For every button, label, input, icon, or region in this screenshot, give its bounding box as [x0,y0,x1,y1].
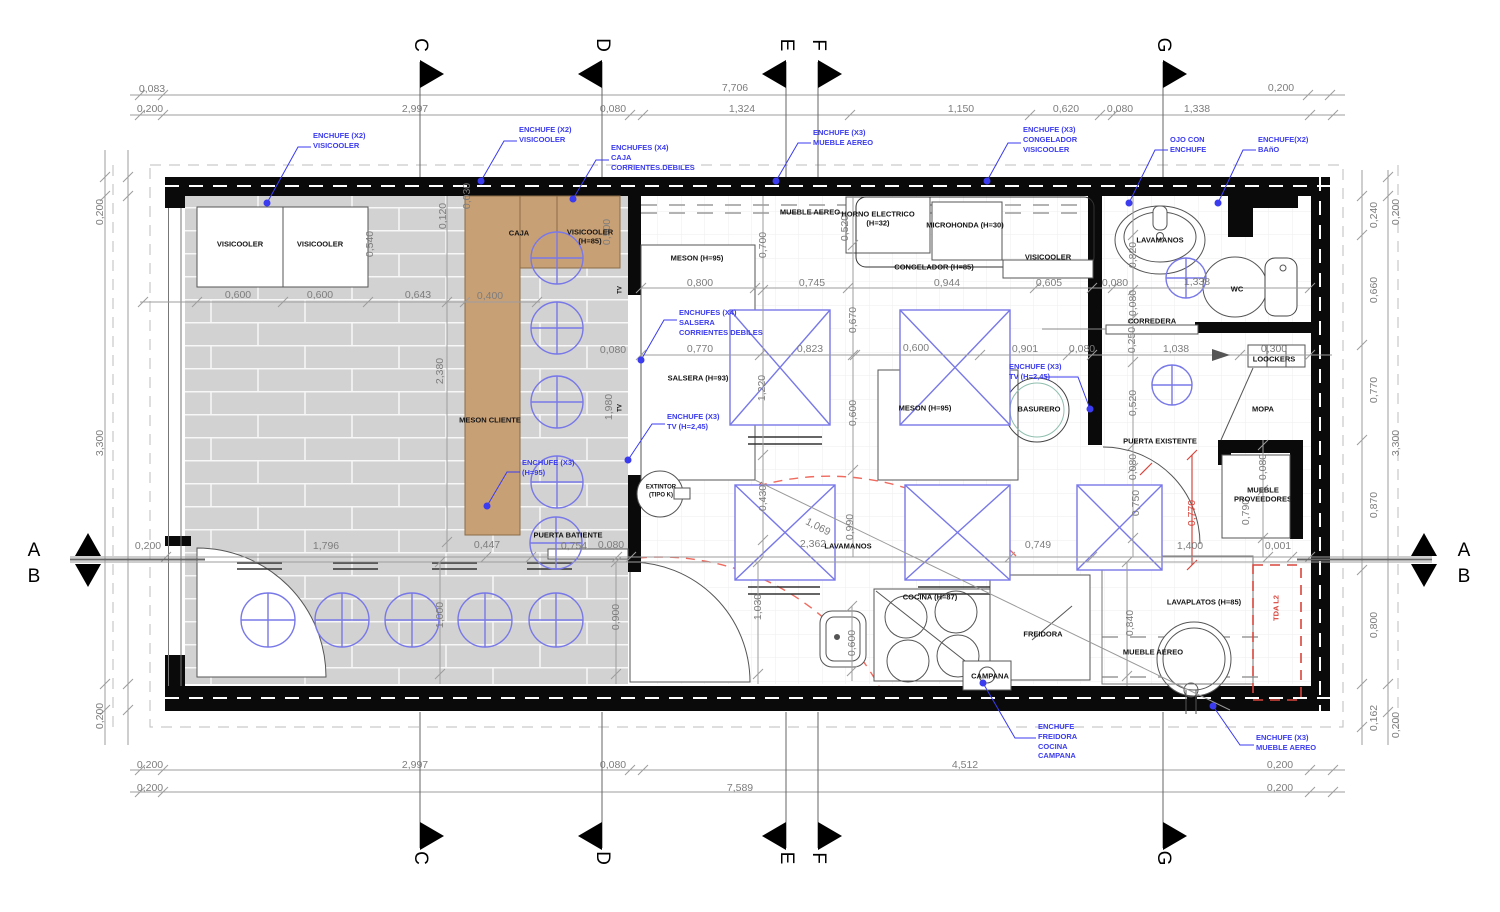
dim: 0,200 [1267,782,1293,794]
dim: 2,380 [434,358,446,384]
dim: 0,944 [934,277,960,289]
dim: 0,770 [1368,377,1380,403]
dim: 0,870 [1368,492,1380,518]
annotation-enchufe-tv: ENCHUFE (X3) TV (H=2,45) [667,412,720,432]
label-loockers: LOOCKERS [1253,354,1296,363]
section-marker-f-bottom: F [807,852,829,864]
label-lavamanos: LAVAMANOS [824,541,871,550]
storefront-glazing [169,208,182,686]
label-caja: CAJA [509,228,529,237]
dim: 0,620 [1053,103,1079,115]
dim: 0,901 [1012,343,1038,355]
dim: 1,338 [1184,276,1210,288]
dim: 0,080 [1257,454,1269,480]
dim: 0,080 [598,539,624,551]
dim: 0,990 [844,514,856,540]
section-marker-c-bottom: C [409,851,431,865]
dim: 0,605 [1036,277,1062,289]
dim: 0,840 [1124,610,1136,636]
dim: 3,300 [1390,430,1402,456]
label-meson-h95: MESON (H=95) [899,403,952,412]
dim: 1,324 [729,103,755,115]
annotation-enchufe-mueble-aereo: ENCHUFE (X3) MUEBLE AEREO [1256,733,1316,753]
dim: 0,120 [437,203,449,229]
label-tda-l2: TDA L2 [1271,595,1280,621]
dim: 0,660 [1368,277,1380,303]
dim: 2,997 [402,103,428,115]
dim: 0,080 [1069,343,1095,355]
section-marker-e-top: E [775,39,797,52]
label-congelador: CONGELADOR (H=85) [894,262,973,271]
dim: 0,200 [1268,82,1294,94]
annotation-enchufes-caja: ENCHUFES (X4) CAJA CORRIENTES.DEBILES [611,143,695,172]
annotation-enchufe-h95: ENCHUFE (X3) (H=95) [522,458,575,478]
dim: 0,162 [1368,705,1380,731]
label-mueble-aereo: MUEBLE AEREO [780,207,840,216]
dim: 0,001 [1265,540,1291,552]
label-campana: CAMPANA [971,671,1009,680]
label-visicooler-h85: VISICOOLER (H=85) [567,228,613,247]
dim: 0,745 [799,277,825,289]
section-marker-d-top: D [591,38,613,52]
label-corredera: CORREDERA [1128,316,1176,325]
label-tv: TV [617,404,625,412]
dim: 0,800 [687,277,713,289]
dim: 0,430 [757,485,769,511]
dim: 0,200 [137,759,163,771]
dim: 4,512 [952,759,978,771]
annotation-enchufe-mueble-aereo: ENCHUFE (X3) MUEBLE AEREO [813,128,873,148]
label-freidora: FREIDORA [1023,629,1062,638]
dim: 0,643 [405,289,431,301]
label-puerta-existente: PUERTA EXISTENTE [1123,436,1197,445]
dim: 0,447 [474,539,500,551]
label-meson-cliente: MESON CLIENTE [459,415,521,424]
label-basurero: BASURERO [1018,404,1061,413]
dim: 0,670 [847,307,859,333]
dim: 0,300 [1261,343,1287,355]
dim: 0,200 [135,540,161,552]
section-marker-c-top: C [409,38,431,52]
dim: 0,600 [307,289,333,301]
dim: 0,200 [94,199,106,225]
dim: 1,038 [1163,343,1189,355]
label-microhonda: MICROHONDA (H=30) [926,220,1003,229]
dim: 7,589 [727,782,753,794]
floor-plan-canvas: C D E F G C D E F G A B A B 0,083 7,706 … [0,0,1500,912]
dim: 0,400 [477,290,503,302]
dim: 0,600 [903,342,929,354]
label-visicooler: VISICOOLER [1025,252,1071,261]
dim: 0,083 [139,83,165,95]
dim: 0,080 [600,103,626,115]
dim: 0,754 [561,540,587,552]
dim: 1,400 [1177,540,1203,552]
annotation-enchufe-bano: ENCHUFE(X2) BAñO [1258,135,1308,155]
dim: 0,250 [1126,327,1138,353]
dim-red: 0,770 [1186,500,1198,526]
dim: 0,800 [1368,612,1380,638]
dim: 1,796 [313,540,339,552]
dim: 0,823 [797,343,823,355]
label-horno-electrico: HORNO ELECTRICO (H=32) [841,210,914,229]
annotation-ojo-con-enchufe: OJO CON ENCHUFE [1170,135,1206,155]
dim: 2,997 [402,759,428,771]
dim: 2,362 [800,538,826,550]
annotation-enchufe-visicooler: ENCHUFE (X2) VISICOOLER [519,125,572,145]
label-extintor: EXTINTOR (TIPO K) [646,485,676,500]
dim: 0,200 [94,703,106,729]
dim: 0,200 [1390,712,1402,738]
section-marker-g-bottom: G [1152,851,1174,866]
annotation-enchufe-visicooler: ENCHUFE (X2) VISICOOLER [313,131,366,151]
dim: 0,080 [1107,103,1133,115]
dim: 1,000 [434,602,446,628]
dim: 0,240 [1368,202,1380,228]
dim: 0,080 [1102,277,1128,289]
label-mopa: MOPA [1252,404,1274,413]
section-marker-b-right: B [1458,566,1471,588]
section-marker-a-left: A [28,540,41,562]
dim: 0,820 [1127,242,1139,268]
dim: 0,200 [1267,759,1293,771]
dim: 0,080 [1127,290,1139,316]
label-wc: WC [1231,284,1244,293]
dim: 0,080 [1127,454,1139,480]
dim: 0,700 [757,232,769,258]
dim: 0,200 [1390,199,1402,225]
dim: 0,080 [600,759,626,771]
dim: 0,200 [137,103,163,115]
dim: 0,200 [137,782,163,794]
section-marker-b-left: B [28,566,41,588]
annotation-enchufe-freidora-cocina-campana: ENCHUFE FREIDORA COCINA CAMPANA [1038,722,1077,761]
section-marker-a-right: A [1458,540,1471,562]
section-marker-g-top: G [1152,38,1174,53]
dim: 0,600 [225,289,251,301]
dim: 1,150 [948,103,974,115]
section-marker-e-bottom: E [775,852,797,865]
dim: 0,600 [846,630,858,656]
label-mueble-proveedores: MUEBLE PROVEEDORES [1234,486,1292,505]
annotation-enchufes-salsera: ENCHUFES (X4) SALSERA CORRIENTES DEBILES [679,308,763,337]
dim: 0,750 [1130,490,1142,516]
dim: 0,770 [687,343,713,355]
dim: 0,600 [847,400,859,426]
label-salsera: SALSERA (H=93) [668,373,729,382]
dim: 3,300 [94,430,106,456]
label-cocina: COCINA (H=87) [903,592,958,601]
label-lavamanos: LAVAMANOS [1136,235,1183,244]
dim: 0,520 [1127,390,1139,416]
label-visicooler: VISICOOLER [217,239,263,248]
dim: 7,706 [722,82,748,94]
dim: 0,080 [600,344,626,356]
dim: 0,540 [364,231,376,257]
annotation-enchufe-congelador: ENCHUFE (X3) CONGELADOR VISICOOLER [1023,125,1077,154]
dim: 1,980 [603,394,615,420]
label-mueble-aereo: MUEBLE AEREO [1123,647,1183,656]
section-marker-d-bottom: D [591,851,613,865]
dim: 1,220 [756,375,768,401]
dim: 0,900 [610,604,622,630]
dim: 1,030 [752,594,764,620]
annotation-enchufe-tv: ENCHUFE (X3) TV (H=2,45) [1009,362,1062,382]
label-tv: TV [617,286,625,294]
dim: 0,030 [461,183,473,209]
dim: 1,338 [1184,103,1210,115]
label-meson-h95: MESON (H=95) [671,253,724,262]
section-marker-f-top: F [807,39,829,51]
label-puerta-batiente: PUERTA BATIENTE [533,530,602,539]
label-visicooler: VISICOOLER [297,239,343,248]
dim: 0,749 [1025,539,1051,551]
label-lavaplatos: LAVAPLATOS (H=85) [1167,597,1241,606]
